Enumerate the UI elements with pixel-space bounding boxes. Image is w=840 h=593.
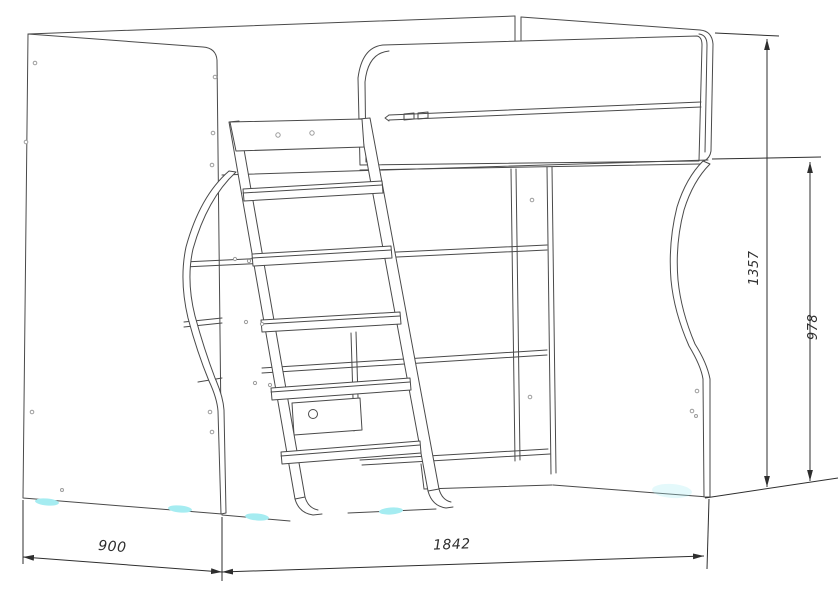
assembly-drawing: 900 1842 1357 978 (0, 0, 840, 593)
back-top-edge (28, 16, 521, 42)
dimension-label-side-height: 978 (806, 314, 821, 340)
safety-rail (358, 36, 702, 165)
dimension-label-overall-height: 1357 (747, 250, 762, 285)
ladder-top-board (230, 119, 364, 151)
ladder-left-rail (229, 121, 305, 499)
ladder-step (261, 312, 401, 332)
dimension-label-length: 1842 (433, 536, 471, 553)
ladder-step (243, 181, 383, 201)
dimension-length-1842 (222, 499, 709, 572)
left-side-panel (23, 34, 222, 514)
assembly-drawing-page: 900 1842 1357 978 (0, 0, 840, 593)
ladder-step (281, 441, 421, 464)
floor-extension-line (705, 478, 838, 498)
drawer (292, 398, 362, 435)
ladder-step (271, 378, 411, 400)
dimension-label-depth: 900 (98, 538, 127, 556)
ladder-left-foot (295, 499, 322, 515)
right-curved-support (670, 161, 710, 497)
ladder-right-rail (359, 118, 439, 491)
ladder (229, 118, 453, 515)
ladder-step (252, 246, 392, 266)
lower-shelf-unit (184, 167, 708, 521)
